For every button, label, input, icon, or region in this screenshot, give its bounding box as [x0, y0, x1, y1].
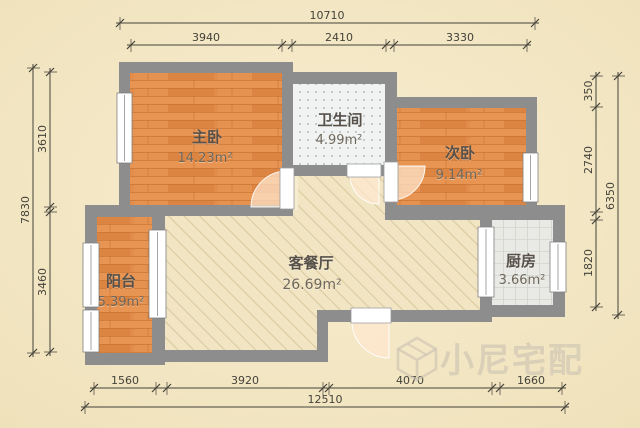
floor-plan-page: 主卧 14.23m² 卫生间 4.99m² 次卧 9.14m² 客餐厅 26.6… — [0, 0, 640, 428]
dim-left-seg-2: 3460 — [36, 268, 49, 296]
room-area-living: 26.69m² — [282, 277, 341, 293]
dim-right-seg-3: 1820 — [582, 249, 595, 277]
dim-top-overall: 10710 — [310, 9, 345, 22]
dim-right-seg-2: 2740 — [582, 146, 595, 174]
room-label-second: 次卧 — [445, 144, 475, 162]
room-area-bathroom: 4.99m² — [316, 133, 363, 148]
watermark-text: 小尼宅配 — [440, 341, 584, 381]
floor-plan-svg: 主卧 14.23m² 卫生间 4.99m² 次卧 9.14m² 客餐厅 26.6… — [0, 0, 640, 428]
room-label-bathroom: 卫生间 — [317, 111, 362, 129]
room-label-kitchen: 厨房 — [506, 252, 536, 270]
room-label-living: 客餐厅 — [287, 254, 333, 272]
room-area-kitchen: 3.66m² — [499, 273, 546, 288]
room-area-second: 9.14m² — [436, 168, 483, 183]
dim-left-overall: 7830 — [19, 196, 32, 224]
dim-top-seg-3: 3330 — [446, 31, 474, 44]
dim-bottom-overall: 12510 — [308, 393, 343, 406]
dim-top-seg-1: 3940 — [192, 31, 220, 44]
dim-left-seg-1: 3610 — [36, 125, 49, 153]
room-label-balcony: 阳台 — [106, 272, 136, 290]
dim-right-overall: 6350 — [604, 182, 617, 210]
dim-top-seg-2: 2410 — [325, 31, 353, 44]
room-area-balcony: 5.39m² — [98, 295, 145, 310]
dim-right-seg-1: 350 — [582, 81, 595, 102]
room-area-master: 14.23m² — [177, 151, 232, 166]
room-label-master: 主卧 — [192, 128, 222, 146]
dim-bottom-seg-2: 3920 — [231, 374, 259, 387]
dim-bottom-seg-1: 1560 — [111, 374, 139, 387]
